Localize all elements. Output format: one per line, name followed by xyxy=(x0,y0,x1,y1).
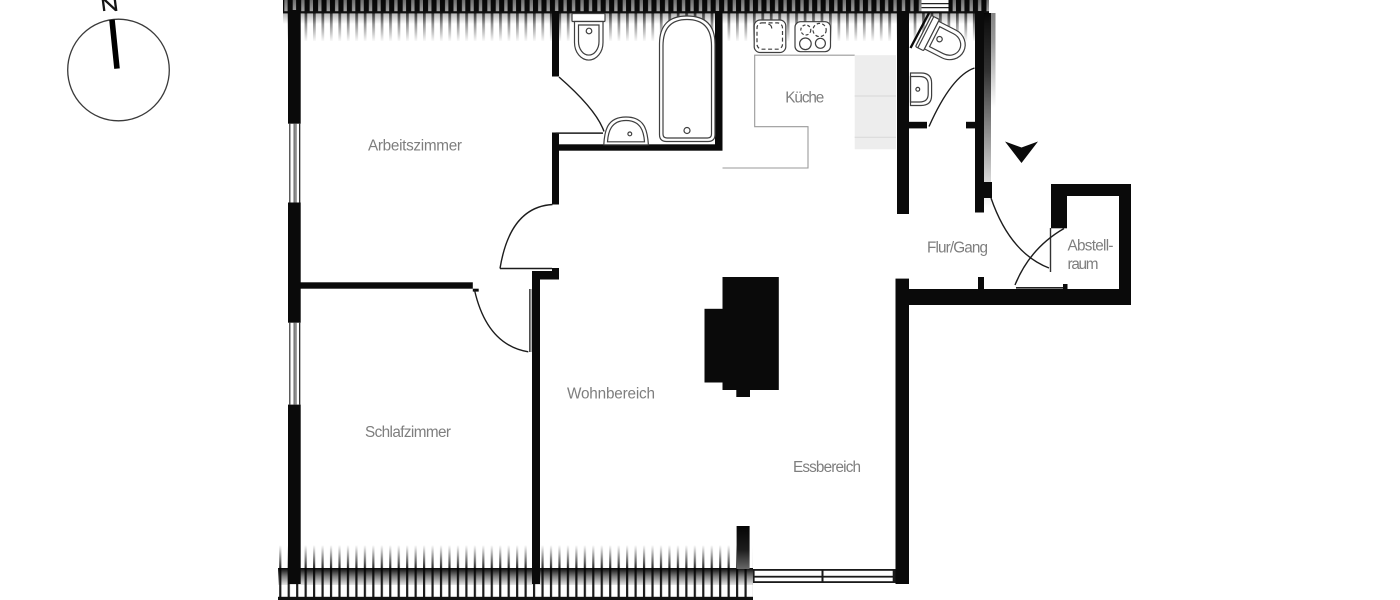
svg-text:Schlafzimmer: Schlafzimmer xyxy=(365,424,451,441)
svg-text:Abstell-: Abstell- xyxy=(1068,238,1114,255)
svg-text:Essbereich: Essbereich xyxy=(793,459,861,476)
svg-text:raum: raum xyxy=(1068,256,1099,273)
svg-text:Küche: Küche xyxy=(785,89,824,106)
svg-text:Flur/Gang: Flur/Gang xyxy=(927,240,988,257)
svg-text:Wohnbereich: Wohnbereich xyxy=(567,385,655,402)
svg-text:Arbeitszimmer: Arbeitszimmer xyxy=(368,138,462,155)
